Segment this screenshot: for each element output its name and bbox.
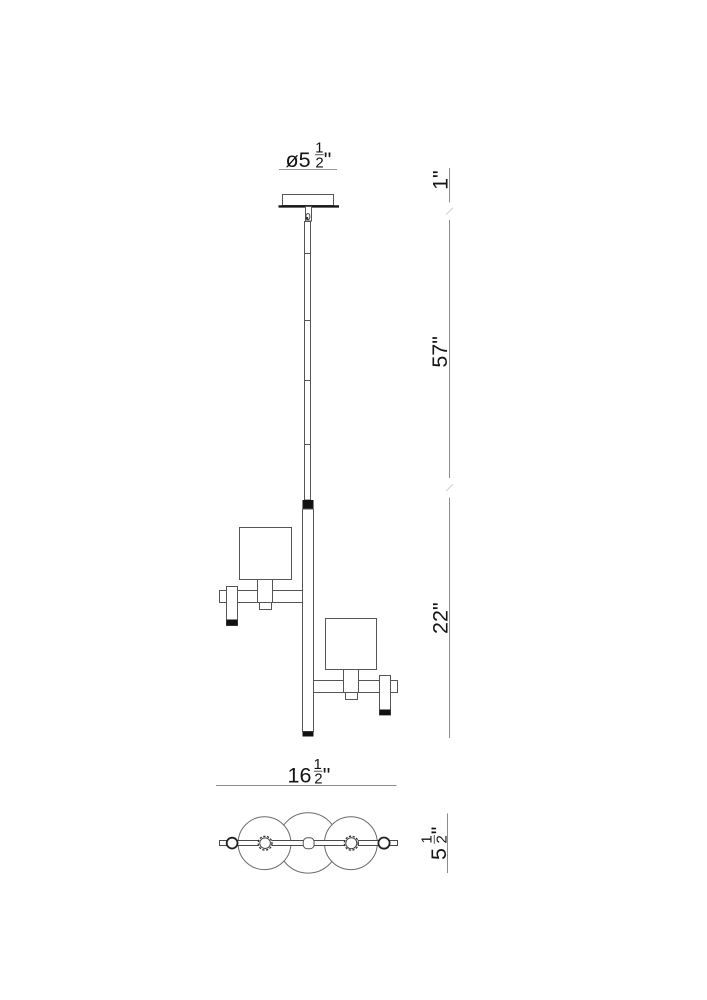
svg-text:": " xyxy=(323,763,331,787)
svg-text:22": 22" xyxy=(428,602,452,634)
svg-text:2: 2 xyxy=(315,154,323,171)
svg-text:": " xyxy=(324,148,332,172)
svg-text:57": 57" xyxy=(428,336,452,368)
svg-text:2: 2 xyxy=(314,771,322,788)
svg-text:16: 16 xyxy=(288,763,312,787)
svg-text:1": 1" xyxy=(428,170,452,190)
svg-text:ø5: ø5 xyxy=(286,148,311,172)
